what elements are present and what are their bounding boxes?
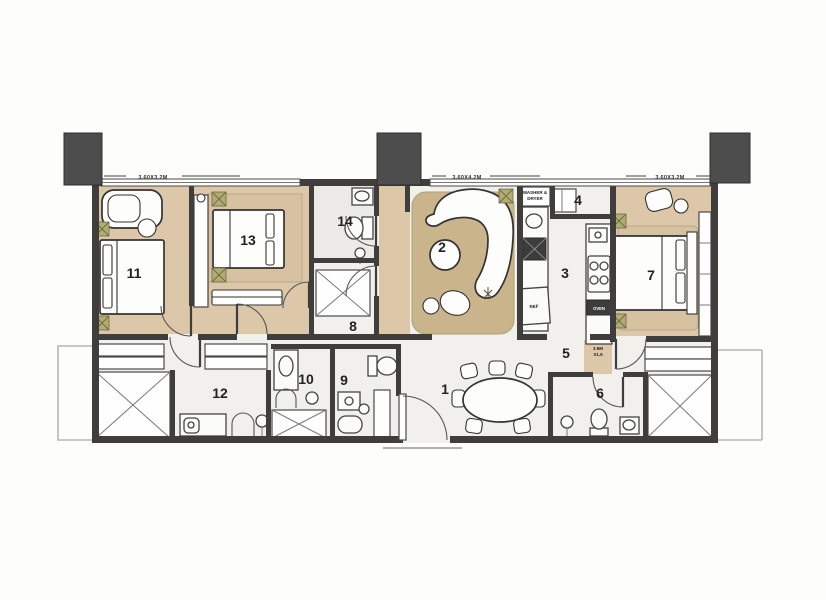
- side-table: [138, 219, 156, 237]
- room-label-9: 9: [340, 372, 348, 388]
- entrance-door-leaf: [399, 394, 406, 440]
- corridor-dim-1: 3.9M: [593, 346, 603, 351]
- room-label-5: 5: [562, 345, 570, 361]
- fridge-label: REF: [529, 304, 539, 310]
- wardrobe: [699, 212, 711, 336]
- oven-label: OVEN: [593, 306, 605, 311]
- floor-plan: WASHER & DRYER REF OVEN: [0, 0, 826, 600]
- floor-plan-page: WASHER & DRYER REF OVEN: [0, 0, 826, 600]
- sink: [279, 356, 293, 376]
- pillow: [676, 240, 685, 270]
- drain-icon: [355, 248, 365, 258]
- pillow: [103, 278, 112, 308]
- dim-label-left: 3.60X3.2M: [138, 175, 167, 181]
- oven: OVEN: [587, 300, 611, 315]
- cooktop-icon: [588, 256, 610, 292]
- shaft-left-xbox: [96, 372, 170, 438]
- column: [377, 133, 421, 185]
- laundry-label-1: WASHER &: [523, 190, 548, 195]
- desk: [194, 195, 208, 307]
- headboard: [687, 232, 697, 314]
- dining-table: [463, 378, 537, 422]
- shower-partition: [374, 390, 390, 438]
- pantry-shelf: [552, 189, 576, 212]
- pillow: [266, 214, 274, 238]
- kitchen-sink: [526, 214, 542, 228]
- dim-label-right: 3.60X3.2M: [655, 175, 684, 181]
- side-table: [674, 199, 688, 213]
- closet-8-xbox: [316, 270, 370, 316]
- room-label-7: 7: [647, 267, 655, 283]
- dining-chair: [465, 418, 483, 434]
- column: [710, 133, 750, 183]
- room-label-10: 10: [298, 371, 314, 387]
- shaft-small-xbox: [272, 410, 326, 438]
- room-label-12: 12: [212, 385, 228, 401]
- toilet-icon: [368, 356, 397, 376]
- room-label-4: 4: [574, 192, 582, 208]
- bed: [614, 232, 697, 314]
- drain-icon: [306, 392, 318, 404]
- column: [64, 133, 102, 185]
- plant-icon: [499, 189, 513, 203]
- bidet-icon: [338, 416, 362, 433]
- shaft-right-xbox: [648, 375, 712, 437]
- wardrobe-strips-right: [645, 347, 713, 371]
- pillow: [266, 241, 274, 265]
- room-label-1: 1: [441, 381, 449, 397]
- room-label-8: 8: [349, 318, 357, 334]
- drain-icon: [359, 404, 369, 414]
- dim-label-middle: 3.60X4.2M: [452, 175, 481, 181]
- room-label-14: 14: [337, 213, 353, 229]
- drain-icon: [561, 416, 573, 428]
- plant-icon: [212, 268, 226, 282]
- bedroom-11-furniture: [95, 190, 164, 330]
- dining-chair: [489, 361, 505, 375]
- dining-chair: [460, 362, 479, 379]
- pillow: [676, 273, 685, 303]
- room-label-3: 3: [561, 265, 569, 281]
- fridge: REF: [519, 287, 550, 325]
- room-label-11: 11: [127, 265, 142, 281]
- dining-chair: [515, 362, 534, 379]
- room-label-2: 2: [438, 239, 446, 255]
- room-label-6: 6: [596, 385, 604, 401]
- window-band-left: [101, 179, 300, 186]
- plant-icon: [212, 192, 226, 206]
- laundry-label-2: DRYER: [527, 196, 543, 201]
- toilet-icon: [590, 409, 608, 436]
- side-table: [423, 298, 439, 314]
- pillow: [103, 245, 112, 275]
- room-label-13: 13: [240, 232, 256, 248]
- corridor-dim-2: X1.5: [593, 352, 603, 357]
- bedroom-13-furniture: [194, 192, 284, 307]
